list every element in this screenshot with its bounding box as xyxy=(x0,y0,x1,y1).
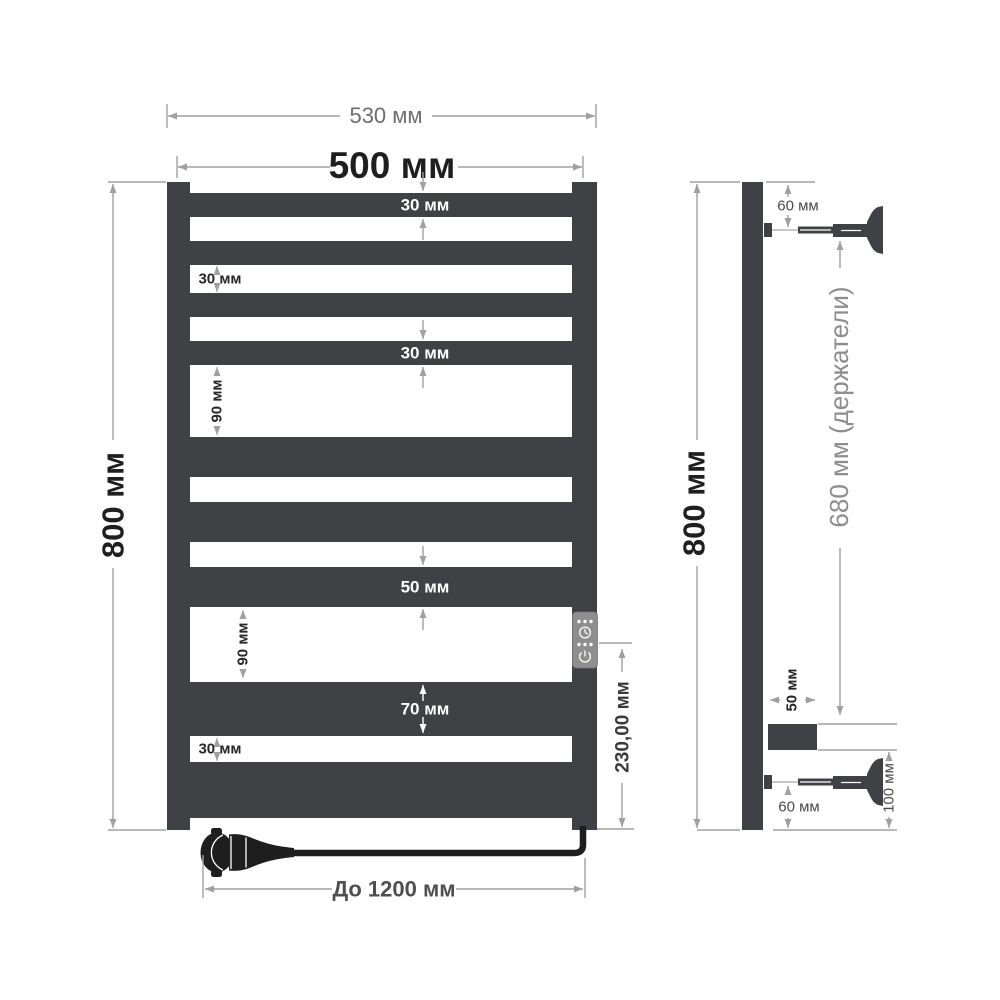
power-plug xyxy=(201,828,295,877)
dim-gap-90-upper: 90 мм xyxy=(209,367,226,435)
rail-bar xyxy=(190,682,572,736)
rail-bar-bottom xyxy=(190,762,572,818)
towel-rail-dimension-drawing: 530 мм 500 мм 800 мм 30 мм 30 мм xyxy=(0,0,1000,1000)
dim-gap-90-lower: 90 мм xyxy=(235,610,252,678)
side-controller-box xyxy=(768,724,897,750)
dim-front-height-800: 800 мм xyxy=(96,182,167,830)
gap-top-label: 30 мм xyxy=(198,271,241,288)
rail-bar xyxy=(190,502,572,542)
dim-500-label: 500 мм xyxy=(329,145,456,186)
dim-bottom-100: 100 мм xyxy=(881,752,898,828)
dim-bottom-offset-60: 60 мм xyxy=(778,786,819,828)
dim-530-label: 530 мм xyxy=(349,103,422,128)
dim-side-height-800: 800 мм xyxy=(677,184,712,828)
drawing-canvas: 530 мм 500 мм 800 мм 30 мм 30 мм xyxy=(0,0,1000,1000)
gap-90-lower-label: 90 мм xyxy=(235,622,252,665)
wall-cone xyxy=(867,758,883,806)
gap-bottom-label: 30 мм xyxy=(198,741,241,758)
dim-230-label: 230,00 мм xyxy=(613,681,634,773)
side-post xyxy=(742,182,763,830)
front-view: 530 мм 500 мм 800 мм 30 мм 30 мм xyxy=(96,103,635,902)
dim-side-800-label: 800 мм xyxy=(677,450,712,556)
rail-bar xyxy=(190,341,572,365)
dim-680-label: 680 мм (держатели) xyxy=(824,286,854,527)
front-right-post xyxy=(572,182,597,830)
dim-100-label: 100 мм xyxy=(881,763,898,813)
dim-outer-width-530: 530 мм xyxy=(167,103,596,128)
dim-gap-top-30: 30 мм xyxy=(198,266,241,292)
dim-bracket-span-680: 680 мм (держатели) xyxy=(824,241,854,715)
bottom-offset-label: 60 мм xyxy=(778,799,819,816)
dim-top-offset-60: 60 мм xyxy=(777,185,818,227)
bar1-height-label: 30 мм xyxy=(401,196,450,215)
gap-90-upper-label: 90 мм xyxy=(209,379,226,422)
dim-bar7-50: 50 мм xyxy=(401,546,450,630)
dim-50-label: 50 мм xyxy=(784,668,801,711)
dots-icon xyxy=(577,643,592,646)
wall-cone xyxy=(867,206,883,254)
bar7-height-label: 50 мм xyxy=(401,578,450,597)
power-cable xyxy=(201,826,584,877)
bar4-height-label: 30 мм xyxy=(401,344,450,363)
dim-bar4-30: 30 мм xyxy=(401,320,450,388)
dim-1200-label: До 1200 мм xyxy=(332,877,455,902)
front-left-post xyxy=(167,182,190,830)
rail-bar xyxy=(190,241,572,265)
dim-controller-depth-50: 50 мм xyxy=(770,668,815,711)
dim-controller-230: 230,00 мм xyxy=(597,643,634,829)
controller-panel xyxy=(573,612,598,668)
front-rail-bars xyxy=(190,193,572,818)
dim-gap-bottom-30: 30 мм xyxy=(198,738,241,761)
dim-front-800-label: 800 мм xyxy=(96,452,131,558)
rail-bar xyxy=(190,193,572,217)
rail-bar xyxy=(190,567,572,607)
rail-bar xyxy=(190,293,572,317)
bar8-height-label: 70 мм xyxy=(401,700,450,719)
dim-bar-width-500: 500 мм xyxy=(177,145,583,186)
dots-icon xyxy=(577,620,592,623)
rail-bar xyxy=(190,437,572,477)
side-view: 800 мм 60 мм 680 мм (держатели) xyxy=(677,182,898,830)
top-offset-label: 60 мм xyxy=(777,198,818,215)
